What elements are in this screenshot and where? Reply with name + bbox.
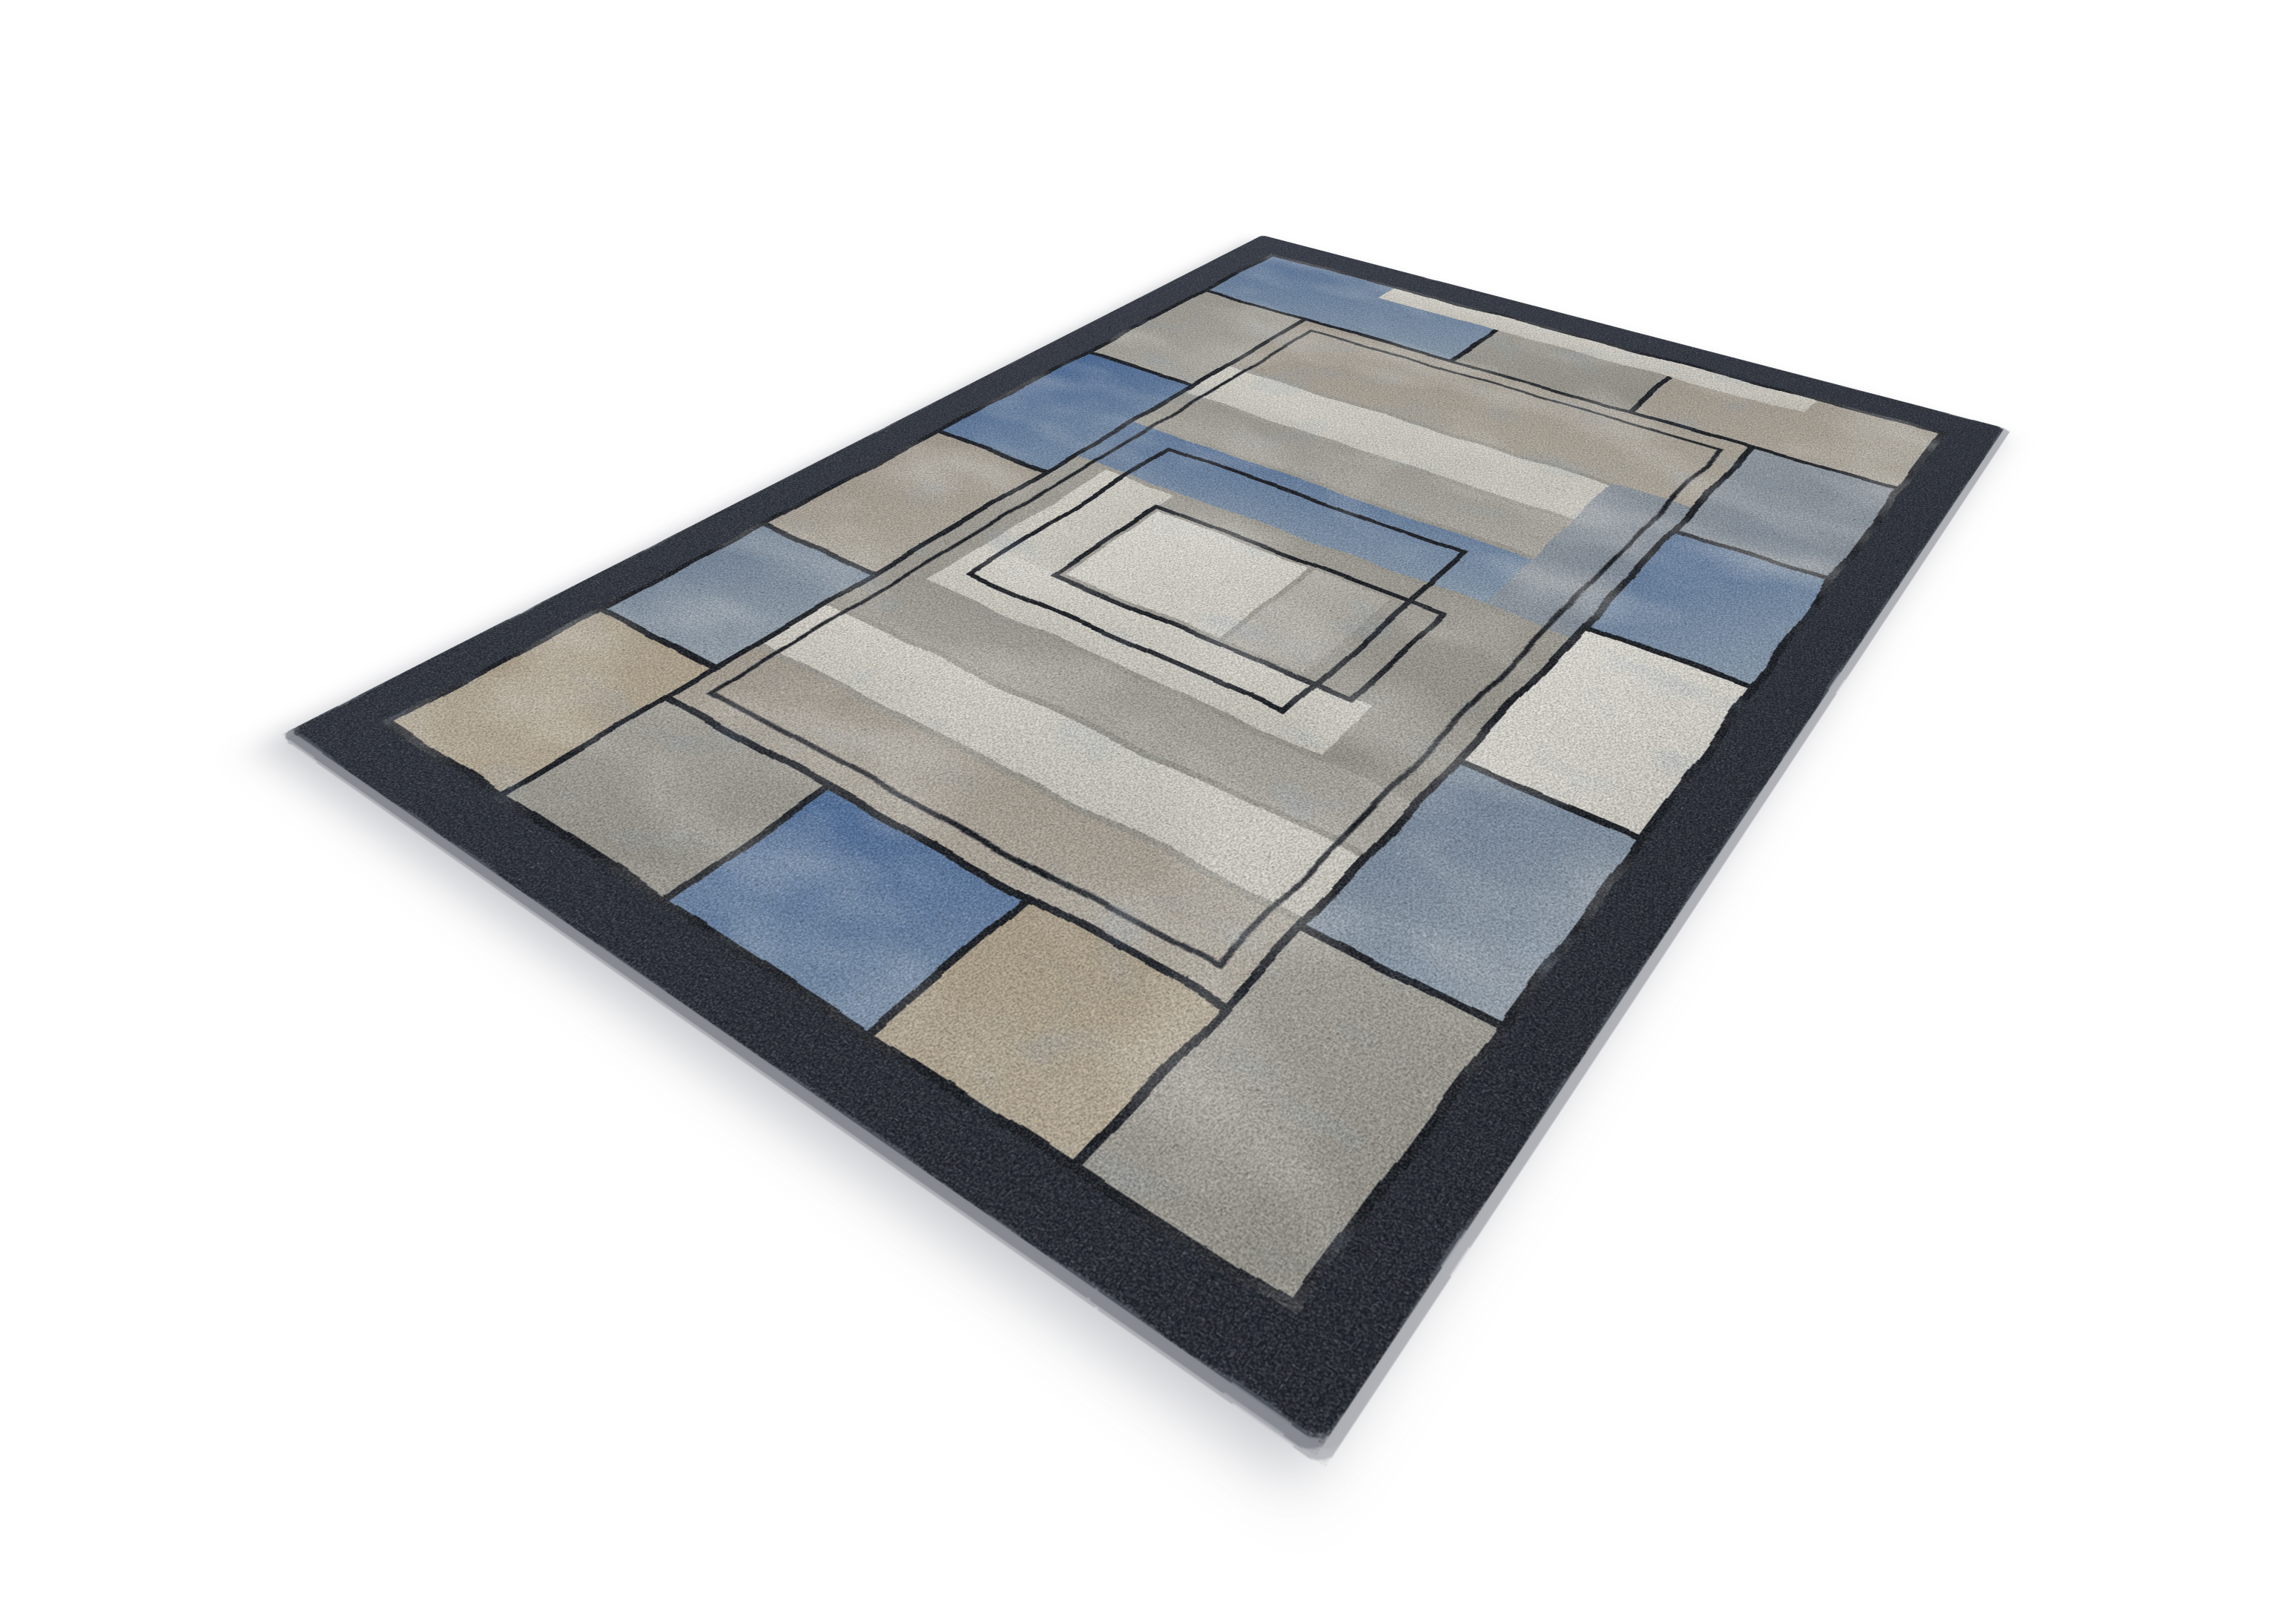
rug	[289, 235, 2005, 1446]
rug-pile-effects	[289, 235, 2005, 1446]
product-photo-scene	[0, 0, 2296, 1620]
rug-graphic	[289, 235, 2005, 1446]
